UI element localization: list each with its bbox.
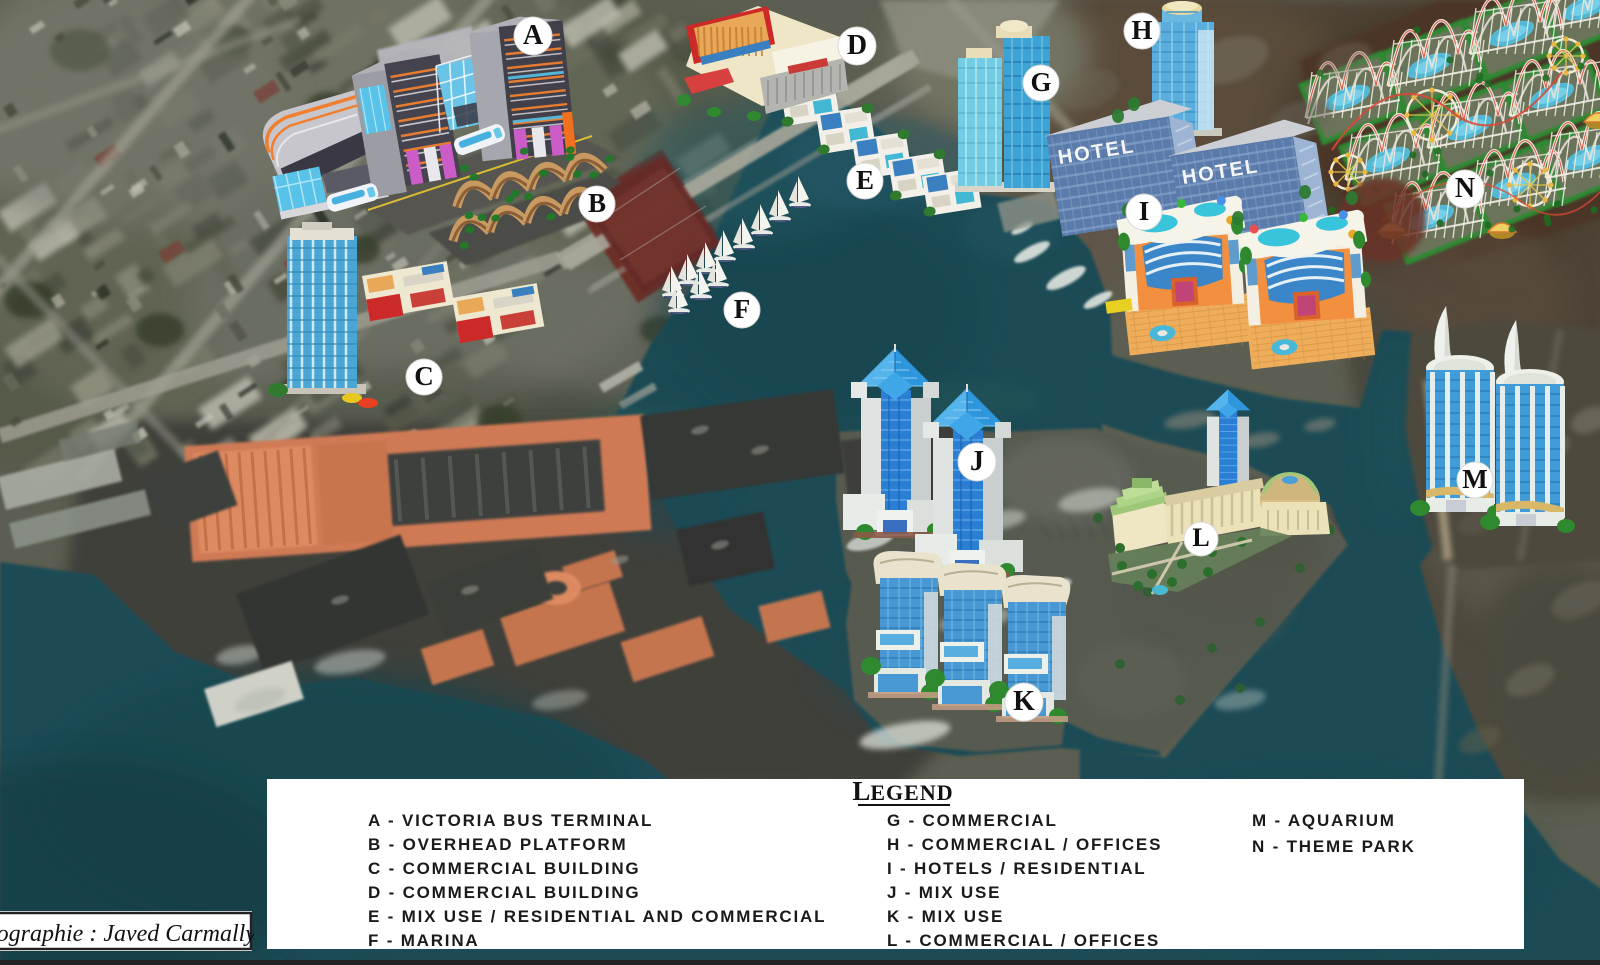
svg-text:J - MIX USE: J - MIX USE [887, 883, 1001, 902]
svg-text:A - VICTORIA BUS TERMINAL: A - VICTORIA BUS TERMINAL [368, 811, 653, 830]
svg-text:K - MIX USE: K - MIX USE [887, 907, 1004, 926]
svg-text:H - COMMERCIAL / OFFICES: H - COMMERCIAL / OFFICES [887, 835, 1162, 854]
svg-text:A: A [523, 20, 544, 51]
svg-text:G: G [1030, 67, 1051, 97]
svg-text:E - MIX USE / RESIDENTIAL AND: E - MIX USE / RESIDENTIAL AND COMMERCIAL [368, 907, 826, 926]
svg-text:I: I [1139, 196, 1150, 226]
svg-text:C - COMMERCIAL BUILDING: C - COMMERCIAL BUILDING [368, 859, 640, 878]
svg-text:D: D [847, 30, 867, 61]
svg-text:D - COMMERCIAL BUILDING: D - COMMERCIAL BUILDING [368, 883, 640, 902]
svg-text:LEGEND: LEGEND [852, 776, 953, 806]
svg-text:M: M [1462, 464, 1487, 494]
svg-text:E: E [856, 165, 874, 195]
svg-text:F: F [734, 294, 751, 324]
svg-text:L - COMMERCIAL / OFFICES: L - COMMERCIAL / OFFICES [887, 931, 1160, 950]
svg-text:I - HOTELS / RESIDENTIAL: I - HOTELS / RESIDENTIAL [887, 859, 1147, 878]
svg-text:K: K [1013, 686, 1035, 717]
svg-text:N: N [1455, 173, 1475, 204]
svg-text:L: L [1192, 523, 1209, 552]
svg-text:J: J [970, 446, 984, 477]
svg-text:M - AQUARIUM: M - AQUARIUM [1252, 811, 1396, 830]
svg-text:H: H [1131, 15, 1152, 45]
svg-text:C: C [414, 361, 434, 391]
svg-text:B: B [588, 188, 606, 218]
svg-text:B - OVERHEAD PLATFORM: B - OVERHEAD PLATFORM [368, 835, 627, 854]
svg-text:tographie : Javed Carmally: tographie : Javed Carmally [0, 921, 256, 947]
svg-text:G - COMMERCIAL: G - COMMERCIAL [887, 811, 1058, 830]
svg-text:N - THEME PARK: N - THEME PARK [1252, 837, 1416, 856]
svg-text:F - MARINA: F - MARINA [368, 931, 479, 950]
